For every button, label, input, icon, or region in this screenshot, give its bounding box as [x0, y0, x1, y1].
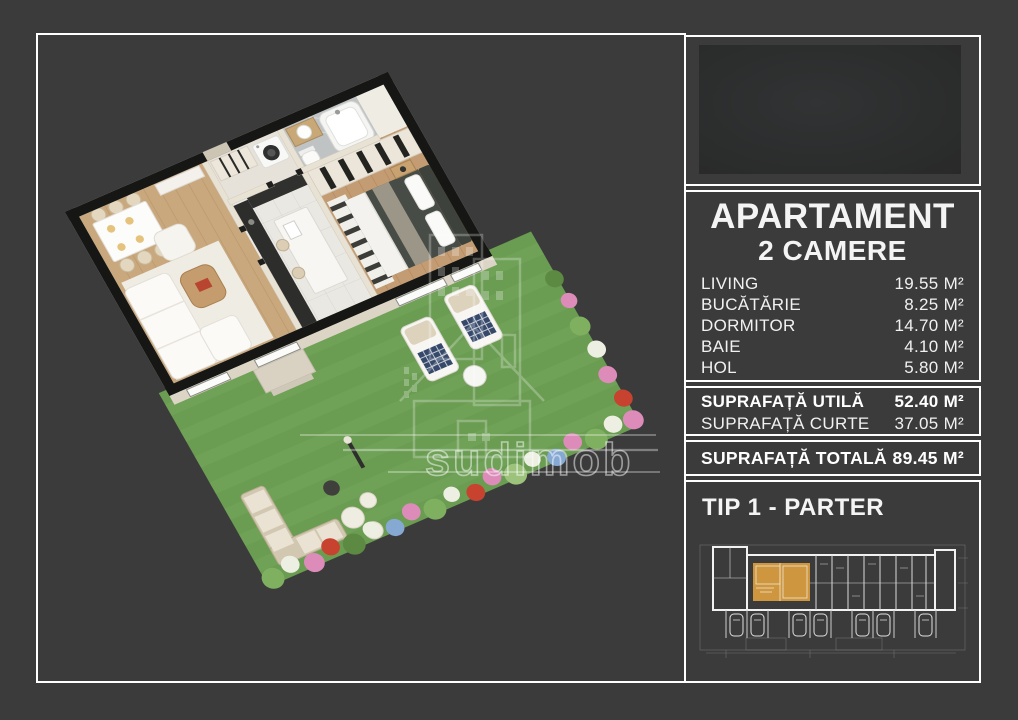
room-value: 19.55 M² — [895, 273, 965, 294]
total-surface-row: SUPRAFAȚĂ TOTALĂ 89.45 M² — [701, 448, 964, 469]
surface-panel: SUPRAFAȚĂ UTILĂ 52.40 M² SUPRAFAȚĂ CURTE… — [684, 386, 981, 436]
room-value: 14.70 M² — [895, 315, 965, 336]
total-surface-label: SUPRAFAȚĂ TOTALĂ — [701, 448, 887, 469]
room-label: BAIE — [701, 336, 741, 357]
room-label: BUCĂTĂRIE — [701, 294, 801, 315]
room-label: HOL — [701, 357, 737, 378]
room-area-row: BUCĂTĂRIE 8.25 M² — [701, 294, 964, 315]
total-surface-panel: SUPRAFAȚĂ TOTALĂ 89.45 M² — [684, 440, 981, 476]
floor-plan-frame: sudimob — [36, 33, 686, 683]
unit-type-title: TIP 1 - PARTER — [686, 482, 979, 522]
courtyard-surface-label: SUPRAFAȚĂ CURTE — [701, 413, 870, 435]
unit-type-panel: TIP 1 - PARTER — [684, 480, 981, 683]
room-area-row: BAIE 4.10 M² — [701, 336, 964, 357]
room-value: 4.10 M² — [904, 336, 964, 357]
apartment-presentation: sudimob APARTAMENT 2 CAMERE LIVING 19.55… — [0, 0, 1018, 720]
courtyard-surface-row: SUPRAFAȚĂ CURTE 37.05 M² — [701, 413, 964, 435]
room-area-row: DORMITOR 14.70 M² — [701, 315, 964, 336]
room-area-row: HOL 5.80 M² — [701, 357, 964, 378]
logo-panel — [684, 35, 981, 186]
apartment-title: APARTAMENT — [701, 198, 964, 236]
room-area-list: LIVING 19.55 M² BUCĂTĂRIE 8.25 M² DORMIT… — [701, 273, 964, 378]
floor-plan-illustration: sudimob — [38, 35, 684, 681]
building-outline — [713, 547, 955, 610]
room-area-row: LIVING 19.55 M² — [701, 273, 964, 294]
highlighted-unit — [753, 563, 810, 601]
useful-surface-value: 52.40 M² — [895, 391, 965, 413]
parking-row — [726, 610, 936, 638]
room-label: DORMITOR — [701, 315, 796, 336]
logo-placeholder — [699, 45, 961, 174]
useful-surface-label: SUPRAFAȚĂ UTILĂ — [701, 391, 864, 413]
room-value: 5.80 M² — [904, 357, 964, 378]
courtyard-surface-value: 37.05 M² — [895, 413, 965, 435]
useful-surface-row: SUPRAFAȚĂ UTILĂ 52.40 M² — [701, 391, 964, 413]
room-value: 8.25 M² — [904, 294, 964, 315]
apartment-info-panel: APARTAMENT 2 CAMERE LIVING 19.55 M² BUCĂ… — [684, 190, 981, 382]
room-label: LIVING — [701, 273, 759, 294]
dimension-lines — [700, 545, 968, 658]
watermark-text: sudimob — [425, 434, 634, 485]
building-floor-plan-diagram — [686, 538, 979, 681]
total-surface-value: 89.45 M² — [893, 448, 964, 469]
apartment-subtitle: 2 CAMERE — [701, 236, 964, 266]
